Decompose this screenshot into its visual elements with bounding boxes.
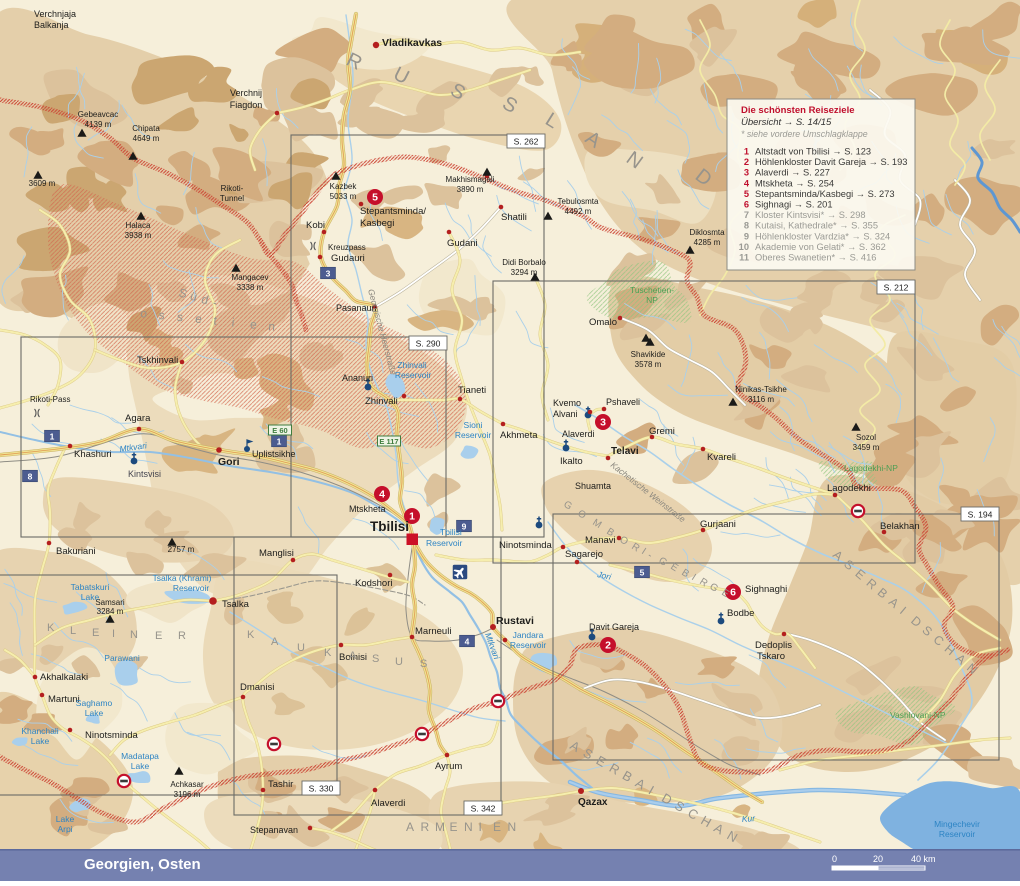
svg-text:Stepanavan: Stepanavan: [250, 825, 298, 835]
svg-text:Gudauri: Gudauri: [331, 253, 365, 264]
svg-text:Shatili: Shatili: [501, 212, 527, 223]
svg-text:2: 2: [605, 640, 611, 652]
svg-text:Davit Gareja: Davit Gareja: [589, 622, 639, 632]
svg-text:Tsalka (Khrami): Tsalka (Khrami): [152, 573, 211, 583]
svg-text:Kutaisi, Kathedrale* → S. 355: Kutaisi, Kathedrale* → S. 355: [755, 221, 878, 231]
svg-text:S. 330: S. 330: [309, 784, 334, 794]
svg-text:S. 290: S. 290: [416, 339, 441, 349]
svg-text:Alaverdi: Alaverdi: [371, 798, 405, 809]
svg-text:Lagodekhi-NP: Lagodekhi-NP: [844, 463, 898, 473]
svg-text:Alvani: Alvani: [553, 409, 578, 419]
svg-text:0: 0: [832, 854, 837, 864]
svg-text:3284 m: 3284 m: [97, 607, 124, 616]
svg-text:Reservoir: Reservoir: [395, 370, 432, 380]
svg-text:Oberes Swanetien* → S. 416: Oberes Swanetien* → S. 416: [755, 253, 876, 263]
svg-text:4649 m: 4649 m: [133, 134, 160, 143]
svg-text:2: 2: [744, 157, 749, 167]
svg-text:Pshaveli: Pshaveli: [606, 397, 640, 407]
svg-text:Kintsvisi: Kintsvisi: [128, 469, 161, 479]
svg-text:Ananuri: Ananuri: [342, 373, 373, 383]
svg-text:Stepantsminda/: Stepantsminda/: [360, 206, 426, 217]
svg-text:Ninotsminda: Ninotsminda: [85, 730, 139, 741]
svg-text:Chipata: Chipata: [132, 124, 160, 133]
svg-text:Verchnij: Verchnij: [230, 88, 262, 98]
svg-text:Khanchali: Khanchali: [21, 726, 58, 736]
svg-text:Kobi: Kobi: [306, 220, 325, 231]
svg-text:Akhmeta: Akhmeta: [500, 430, 538, 441]
svg-text:Bakuriani: Bakuriani: [56, 546, 96, 557]
svg-text:Ikalto: Ikalto: [560, 456, 583, 467]
svg-text:E: E: [155, 630, 162, 642]
svg-text:N: N: [130, 629, 138, 641]
svg-text:Uplistsikhe: Uplistsikhe: [252, 449, 296, 459]
svg-text:3294 m: 3294 m: [511, 268, 538, 277]
svg-text:Dmanisi: Dmanisi: [240, 682, 274, 693]
svg-text:9: 9: [744, 231, 749, 241]
svg-text:Gremi: Gremi: [649, 426, 675, 437]
svg-text:4139 m: 4139 m: [85, 120, 112, 129]
svg-text:4: 4: [465, 636, 470, 646]
svg-text:L: L: [70, 625, 76, 637]
svg-text:Lake: Lake: [31, 736, 50, 746]
svg-text:Reservoir: Reservoir: [455, 430, 492, 440]
svg-text:3609 m: 3609 m: [29, 179, 56, 188]
svg-text:Kvareli: Kvareli: [707, 452, 736, 463]
svg-text:10: 10: [739, 242, 749, 252]
svg-text:3938 m: 3938 m: [125, 231, 152, 240]
svg-text:Kasbegi: Kasbegi: [360, 218, 394, 229]
svg-text:4: 4: [744, 178, 750, 188]
svg-text:Alaverdi: Alaverdi: [562, 429, 595, 439]
svg-text:U: U: [395, 656, 403, 668]
svg-text:K: K: [47, 622, 55, 634]
svg-text:8: 8: [744, 221, 749, 231]
svg-text:Parawani: Parawani: [104, 653, 140, 663]
svg-text:E: E: [450, 820, 458, 834]
svg-text:Mangacev: Mangacev: [232, 273, 269, 282]
svg-text:Georgien, Osten: Georgien, Osten: [84, 856, 201, 873]
svg-text:9: 9: [462, 521, 467, 531]
svg-text:Diklosmta: Diklosmta: [689, 228, 725, 237]
svg-text:Lake: Lake: [56, 814, 75, 824]
svg-text:11: 11: [739, 253, 749, 263]
svg-text:1: 1: [50, 431, 55, 441]
svg-text:1: 1: [277, 436, 282, 446]
svg-text:Lake: Lake: [131, 761, 150, 771]
svg-text:Zhinvali: Zhinvali: [397, 360, 426, 370]
svg-text:Stepantsminda/Kasbegi → S. 273: Stepantsminda/Kasbegi → S. 273: [755, 189, 895, 199]
svg-text:Reservoir: Reservoir: [173, 583, 210, 593]
svg-text:R: R: [178, 630, 186, 642]
svg-text:Ninikas-Tsikhe: Ninikas-Tsikhe: [735, 385, 787, 394]
svg-text:Tbilisi: Tbilisi: [440, 527, 462, 537]
svg-text:Tskaro: Tskaro: [757, 651, 785, 662]
svg-text:Lake: Lake: [81, 592, 100, 602]
svg-text:Zhinvali: Zhinvali: [365, 396, 398, 407]
svg-text:Sagarejo: Sagarejo: [565, 549, 603, 560]
svg-text:Höhlenkloster Vardzia* → S. 32: Höhlenkloster Vardzia* → S. 324: [755, 231, 890, 241]
svg-text:R: R: [421, 820, 430, 834]
svg-text:M: M: [435, 820, 445, 834]
svg-text:Tianeti: Tianeti: [458, 385, 486, 396]
svg-text:Sighnaghi: Sighnaghi: [745, 584, 787, 595]
svg-text:Ayrum: Ayrum: [435, 761, 462, 772]
svg-text:U: U: [297, 642, 305, 654]
svg-text:3: 3: [600, 417, 606, 429]
svg-text:Mtskheta: Mtskheta: [349, 504, 386, 514]
svg-text:n: n: [268, 319, 276, 334]
svg-text:Kodshori: Kodshori: [355, 578, 393, 589]
svg-text:3338 m: 3338 m: [237, 283, 264, 292]
svg-text:Sioni: Sioni: [464, 420, 483, 430]
svg-text:K: K: [324, 647, 332, 659]
svg-text:Makhismagali: Makhismagali: [446, 175, 495, 184]
svg-text:Shuamta: Shuamta: [575, 481, 611, 491]
svg-text:1: 1: [409, 511, 415, 523]
svg-text:Gurjaani: Gurjaani: [700, 519, 736, 530]
svg-text:2757 m: 2757 m: [168, 545, 195, 554]
svg-text:Tashir: Tashir: [268, 779, 293, 790]
svg-text:Samsari: Samsari: [95, 598, 125, 607]
svg-text:Fiagdon: Fiagdon: [230, 100, 263, 110]
svg-text:N: N: [464, 820, 473, 834]
svg-text:Mingechevir: Mingechevir: [934, 819, 980, 829]
svg-text:Khashuri: Khashuri: [74, 449, 112, 460]
svg-text:8: 8: [28, 471, 33, 481]
svg-text:7: 7: [744, 210, 749, 220]
svg-text:* siehe vordere Umschlagklappe: * siehe vordere Umschlagklappe: [741, 129, 868, 139]
svg-text:K: K: [247, 629, 255, 641]
svg-text:3890 m: 3890 m: [457, 185, 484, 194]
svg-text:Kvemo: Kvemo: [553, 398, 581, 408]
svg-text:Reservoir: Reservoir: [510, 640, 547, 650]
svg-text:S. 194: S. 194: [968, 510, 993, 520]
svg-text:Agara: Agara: [125, 413, 151, 424]
svg-text:4285 m: 4285 m: [694, 238, 721, 247]
svg-text:Gori: Gori: [218, 456, 240, 468]
svg-text:20: 20: [873, 854, 883, 864]
svg-text:Lagodekhi: Lagodekhi: [827, 483, 871, 494]
svg-text:Die schönsten Reiseziele: Die schönsten Reiseziele: [741, 105, 855, 116]
svg-text:Saghamo: Saghamo: [76, 698, 113, 708]
svg-text:Tabatskuri: Tabatskuri: [71, 582, 110, 592]
svg-text:Tbilisi: Tbilisi: [370, 519, 409, 534]
svg-text:Reservoir: Reservoir: [939, 829, 976, 839]
svg-text:S. 262: S. 262: [514, 137, 539, 147]
svg-text:Rustavi: Rustavi: [496, 615, 534, 627]
svg-text:S: S: [372, 653, 379, 665]
svg-text:E 117: E 117: [379, 437, 398, 446]
svg-text:Akademie von Gelati* → S. 362: Akademie von Gelati* → S. 362: [755, 242, 886, 252]
svg-text:NP: NP: [646, 295, 658, 305]
svg-text:4: 4: [379, 489, 385, 501]
svg-text:5033 m: 5033 m: [330, 192, 357, 201]
svg-text:Altstadt von Tbilisi → S. 123: Altstadt von Tbilisi → S. 123: [755, 147, 871, 157]
svg-text:3459 m: 3459 m: [853, 443, 880, 452]
svg-text:Balkanja: Balkanja: [34, 20, 69, 30]
svg-text:E: E: [493, 820, 501, 834]
svg-text:Halaca: Halaca: [126, 221, 151, 230]
svg-text:I: I: [479, 820, 482, 834]
svg-text:5: 5: [640, 567, 645, 577]
svg-text:Tskhinvali: Tskhinvali: [137, 355, 178, 366]
svg-text:Rikoti-: Rikoti-: [221, 184, 244, 193]
svg-text:Bodbe: Bodbe: [727, 608, 754, 619]
svg-text:Kazbek: Kazbek: [330, 182, 358, 191]
svg-text:A: A: [349, 650, 357, 662]
svg-text:Alaverdi → S. 227: Alaverdi → S. 227: [755, 168, 830, 178]
svg-text:Ninotsminda: Ninotsminda: [499, 540, 553, 551]
svg-text:Kloster Kintsvisi* → S. 298: Kloster Kintsvisi* → S. 298: [755, 210, 866, 220]
svg-text:3196 m: 3196 m: [174, 790, 201, 799]
svg-text:Kreuzpass: Kreuzpass: [328, 243, 366, 252]
svg-text:Höhlenkloster Davit Gareja → S: Höhlenkloster Davit Gareja → S. 193: [755, 157, 907, 167]
svg-text:Marneuli: Marneuli: [415, 626, 451, 637]
svg-text:6: 6: [730, 587, 736, 599]
svg-text:3116 m: 3116 m: [748, 395, 774, 404]
svg-text:N: N: [508, 820, 517, 834]
svg-text:Madatapa: Madatapa: [121, 751, 159, 761]
svg-text:S. 342: S. 342: [471, 804, 496, 814]
svg-text:3: 3: [326, 268, 331, 278]
svg-text:Dedoplis: Dedoplis: [755, 640, 792, 651]
svg-text:Lake: Lake: [85, 708, 104, 718]
svg-text:Vashlovani-NP: Vashlovani-NP: [890, 710, 946, 720]
svg-text:Tuschetien-: Tuschetien-: [630, 285, 674, 295]
svg-text:Jandara: Jandara: [513, 630, 544, 640]
svg-text:E: E: [92, 627, 99, 639]
svg-text:6: 6: [744, 200, 749, 210]
svg-text:Mtskheta → S. 254: Mtskheta → S. 254: [755, 178, 834, 188]
svg-text:E 60: E 60: [272, 426, 287, 435]
svg-text:S: S: [420, 658, 427, 670]
svg-text:Didi Borbalo: Didi Borbalo: [502, 258, 546, 267]
svg-text:Tsalka: Tsalka: [222, 599, 250, 610]
svg-text:Belakhan: Belakhan: [880, 521, 920, 532]
svg-text:Rikoti-Pass: Rikoti-Pass: [30, 395, 70, 404]
svg-text:Gebeavcac: Gebeavcac: [78, 110, 118, 119]
svg-text:Sighnagi → S. 201: Sighnagi → S. 201: [755, 200, 833, 210]
svg-text:Verchnjaja: Verchnjaja: [34, 9, 76, 19]
svg-text:I: I: [112, 628, 115, 640]
svg-text:Akhalkalaki: Akhalkalaki: [40, 672, 88, 683]
svg-text:Tebulosmta: Tebulosmta: [558, 197, 599, 206]
svg-text:3: 3: [744, 168, 749, 178]
svg-text:4492 m: 4492 m: [565, 207, 592, 216]
svg-text:40 km: 40 km: [911, 854, 936, 864]
svg-text:Vladikavkas: Vladikavkas: [382, 37, 442, 49]
svg-text:A: A: [271, 636, 279, 648]
svg-text:Übersicht → S. 14/15: Übersicht → S. 14/15: [741, 117, 832, 128]
svg-text:5: 5: [372, 192, 378, 204]
svg-text:Sozol: Sozol: [856, 433, 876, 442]
svg-text:Arpi: Arpi: [57, 824, 72, 834]
svg-text:A: A: [406, 820, 414, 834]
svg-text:3578 m: 3578 m: [635, 360, 662, 369]
svg-text:S. 212: S. 212: [884, 283, 909, 293]
svg-text:Manglisi: Manglisi: [259, 548, 294, 559]
svg-text:Kur: Kur: [741, 813, 756, 824]
svg-text:Gudani: Gudani: [447, 238, 478, 249]
svg-text:5: 5: [744, 189, 749, 199]
svg-text:Omalo: Omalo: [589, 317, 617, 328]
svg-text:Reservoir: Reservoir: [426, 538, 463, 548]
svg-text:Telavi: Telavi: [611, 446, 639, 457]
svg-text:1: 1: [744, 147, 749, 157]
svg-text:Achkasar: Achkasar: [170, 780, 204, 789]
svg-text:Tunnel: Tunnel: [220, 194, 244, 203]
svg-text:Shavikide: Shavikide: [631, 350, 666, 359]
svg-text:Qazax: Qazax: [578, 797, 608, 808]
